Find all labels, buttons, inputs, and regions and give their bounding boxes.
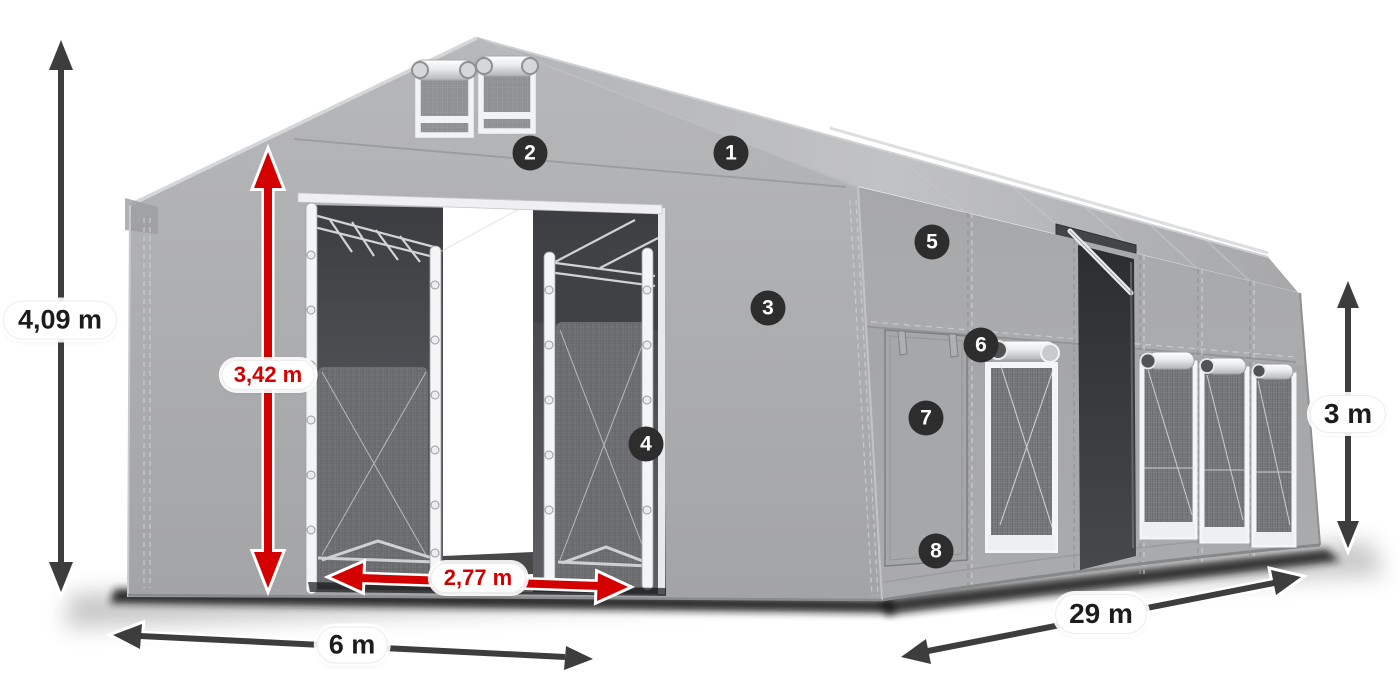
side-window-1 [988, 341, 1059, 550]
tent-illustration [0, 0, 1400, 700]
door-strap [898, 331, 907, 355]
dimension-label-door-height: 3,42 m [222, 360, 315, 390]
side-access-door [885, 330, 967, 566]
dimension-label-side-height: 3 m [1310, 395, 1386, 433]
jamb-keder [658, 208, 665, 594]
feature-marker-6: 6 [964, 328, 999, 363]
dimension-label-length: 29 m [1055, 594, 1147, 634]
dimension-label-gable-width: 6 m [317, 627, 388, 664]
dimension-label-total-height: 4,09 m [3, 301, 117, 340]
side-door-opening [1070, 231, 1136, 570]
side-window-3 [1200, 358, 1247, 541]
drive-through-gap [443, 206, 533, 592]
feature-marker-4: 4 [629, 427, 664, 462]
feature-marker-2: 2 [513, 136, 548, 171]
tent-dimension-diagram: 4,09 m 3,42 m 2,77 m 6 m 29 m 3 m 1 2 3 … [0, 0, 1400, 700]
feature-marker-3: 3 [751, 291, 786, 326]
feature-marker-5: 5 [915, 225, 950, 260]
dimension-label-door-width: 2,77 m [431, 563, 526, 593]
feature-marker-8: 8 [919, 534, 954, 569]
gable-vent-right [476, 56, 538, 131]
gable-vent-left [412, 60, 476, 135]
feature-marker-7: 7 [909, 401, 944, 436]
front-door-opening [306, 203, 666, 596]
door-strap [949, 334, 958, 357]
feature-marker-1: 1 [714, 136, 749, 171]
side-window-4 [1253, 364, 1295, 545]
side-window-2 [1141, 352, 1196, 537]
